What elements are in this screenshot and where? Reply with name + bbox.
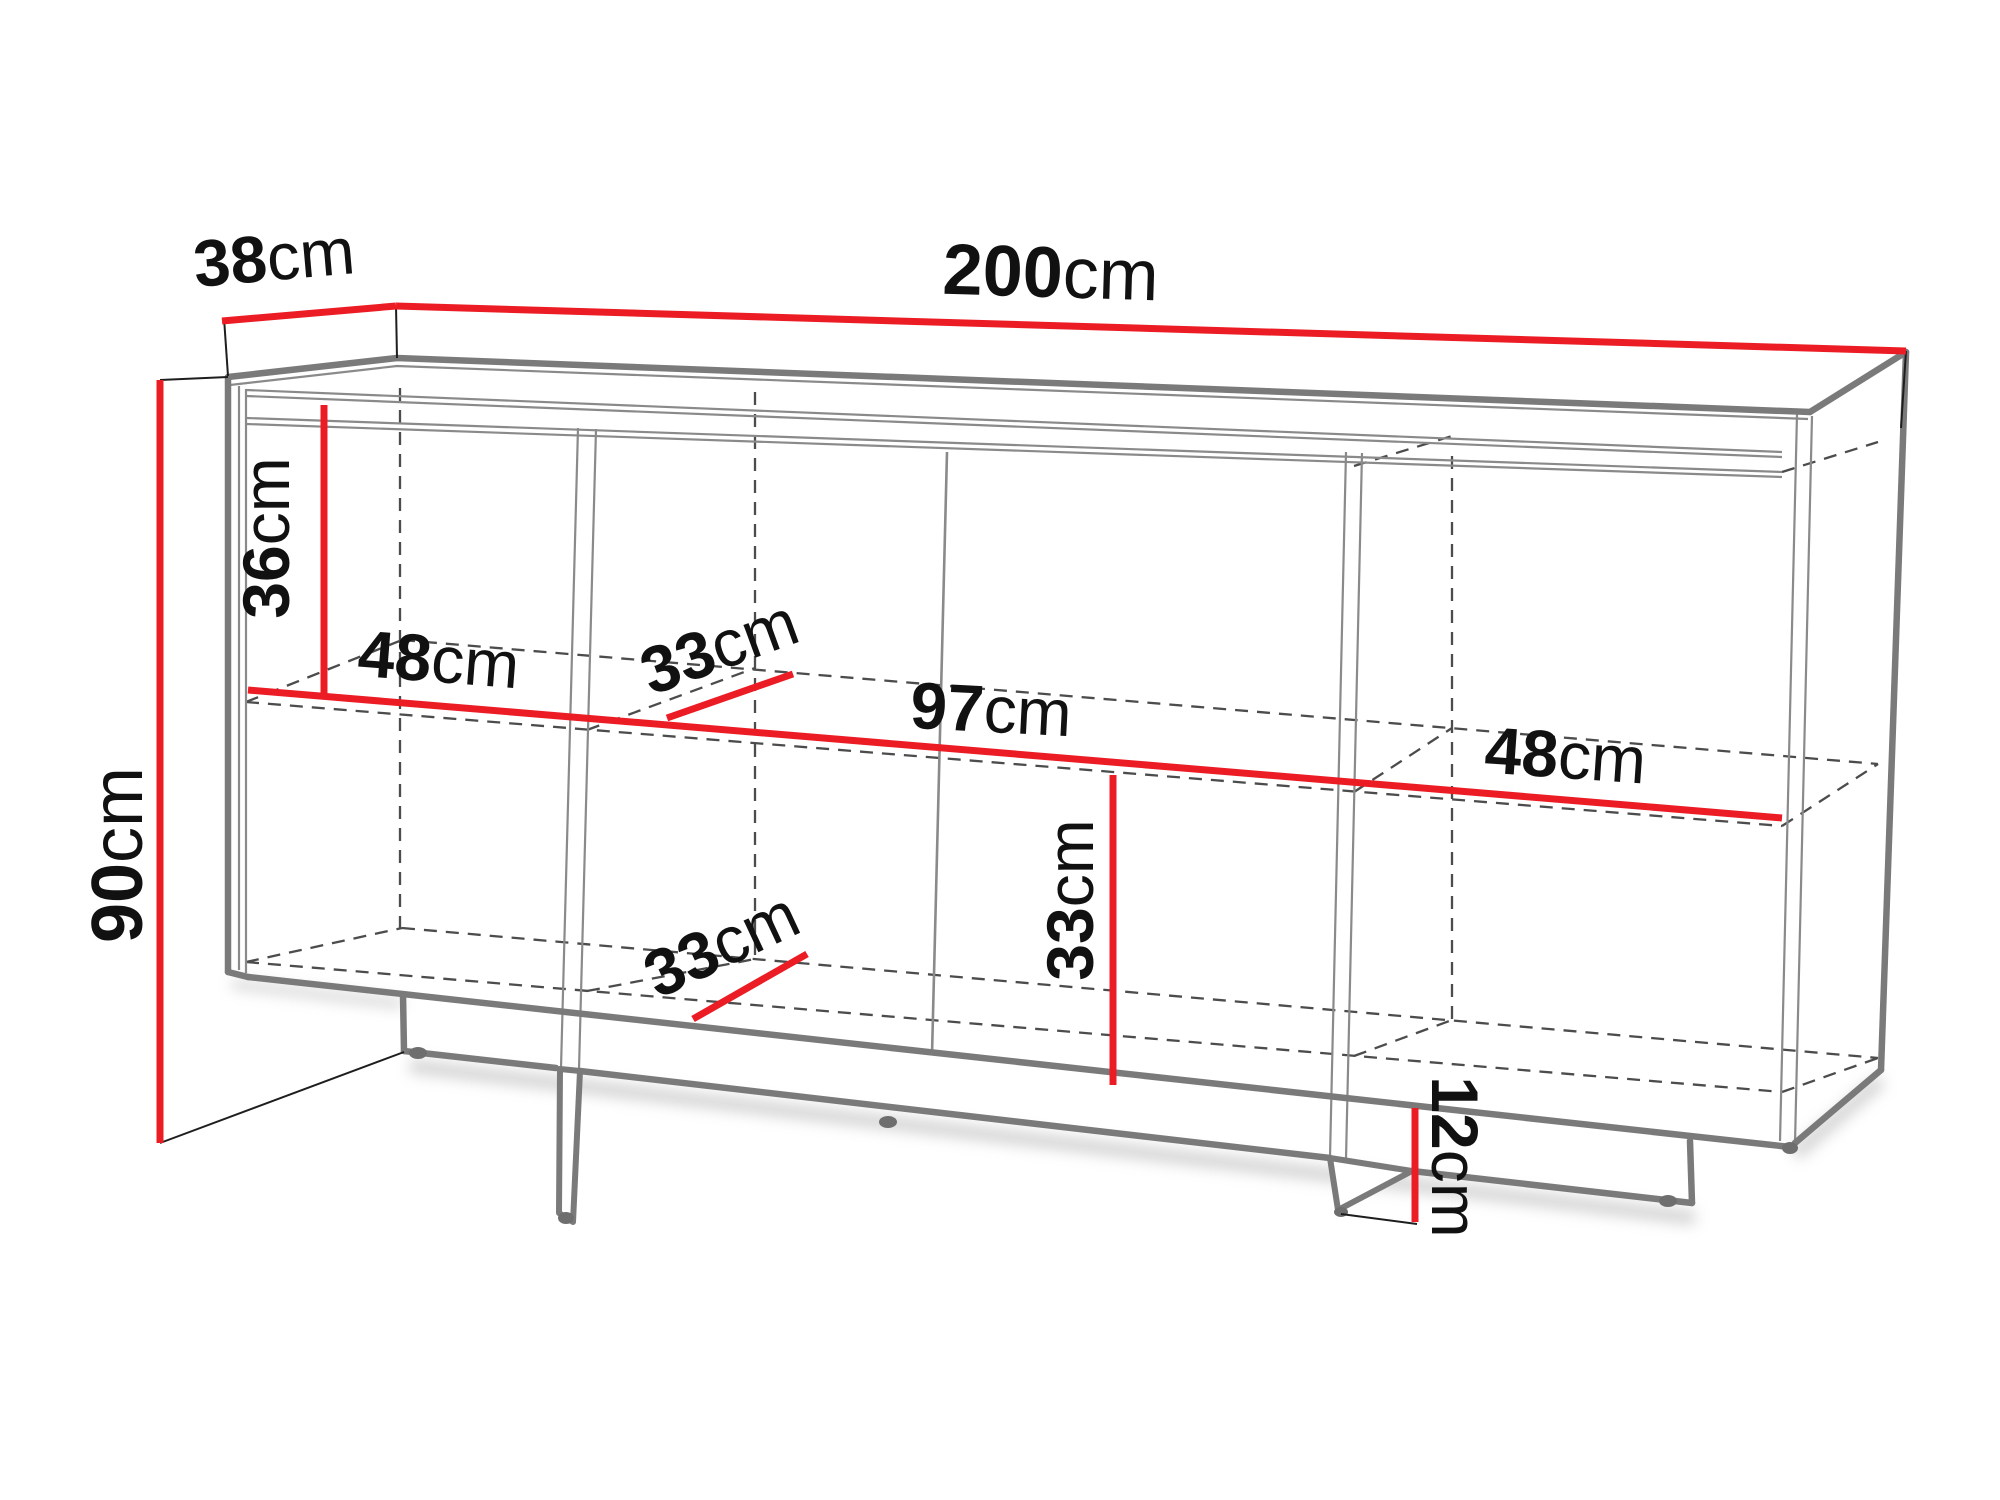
middle-door-gap	[932, 452, 947, 1055]
ext-plinth-bottom	[1341, 1214, 1417, 1224]
shadow-under-plinth	[410, 1066, 1695, 1218]
right-side-inner-edge-b	[1795, 416, 1812, 1143]
svg-text:33cm: 33cm	[1033, 819, 1107, 980]
svg-text:36cm: 36cm	[229, 457, 303, 618]
shelf-back-hidden-edge	[402, 640, 1878, 764]
right-side-inner-edge-a	[1780, 414, 1797, 1141]
shadow-under-right-panel	[1795, 1080, 1881, 1154]
shadow-layer	[232, 984, 1881, 1218]
right-side-bottom-edge	[1795, 1070, 1881, 1143]
foot-left-support	[558, 1212, 574, 1224]
furniture-dimension-diagram: 38cm 200cm 90cm 36cm 48cm 33cm 97cm 48cm…	[0, 0, 2000, 1500]
interior-ceiling-line-2b	[246, 424, 1782, 477]
svg-text:90cm: 90cm	[78, 767, 158, 943]
foot-left	[409, 1047, 427, 1059]
ext-height-top	[160, 377, 228, 380]
dim-label-left-compartment-48cm: 48cm	[355, 616, 522, 702]
floor-depth-edge-left	[246, 928, 402, 962]
svg-text:97cm: 97cm	[909, 668, 1074, 750]
dim-label-depth-38cm: 38cm	[190, 213, 357, 301]
shelf-depth-edge-right	[1782, 764, 1878, 826]
dim-label-lower-inner-33cm: 33cm	[1033, 819, 1107, 980]
dim-label-right-compartment-48cm: 48cm	[1483, 713, 1649, 798]
svg-text:200cm: 200cm	[941, 230, 1160, 317]
svg-text:38cm: 38cm	[190, 213, 357, 301]
ext-height-bottom	[160, 1052, 404, 1143]
ext-depth-left	[224, 318, 228, 376]
cabinet-top-right-depth-edge	[1810, 352, 1906, 412]
diagram-canvas: 38cm 200cm 90cm 36cm 48cm 33cm 97cm 48cm…	[0, 0, 2000, 1500]
dim-label-middle-compartment-97cm: 97cm	[909, 668, 1074, 750]
foot-right	[1659, 1195, 1677, 1207]
svg-text:48cm: 48cm	[1483, 713, 1649, 798]
left-support-foot	[559, 1069, 580, 1222]
right-side-back-edge	[1881, 352, 1906, 1070]
foot-middle	[879, 1116, 897, 1128]
svg-text:12cm: 12cm	[1418, 1076, 1492, 1237]
svg-text:48cm: 48cm	[355, 616, 522, 702]
dim-label-shelf-depth-top-33cm: 33cm	[631, 584, 808, 709]
dim-label-shelf-depth-bottom-33cm: 33cm	[633, 877, 811, 1012]
plinth-left-drop-edge	[403, 995, 404, 1051]
ext-front-corner	[396, 306, 397, 358]
dim-line-depth-38cm	[222, 306, 396, 321]
svg-text:33cm: 33cm	[631, 584, 808, 709]
left-divider-edge-a	[561, 428, 578, 1068]
top-panel-underside-edge	[230, 366, 1808, 419]
dim-label-height-90cm: 90cm	[78, 767, 158, 943]
right-divider-edge-a	[1330, 452, 1346, 1157]
plinth-right-rise-edge	[1690, 1141, 1692, 1203]
dim-label-plinth-12cm: 12cm	[1418, 1076, 1492, 1237]
foot-right-panel	[1782, 1142, 1798, 1154]
dim-label-width-200cm: 200cm	[941, 230, 1160, 317]
left-divider-edge-b	[579, 429, 596, 1069]
svg-text:33cm: 33cm	[633, 877, 811, 1012]
floor-depth-edge-at-right-divider	[1354, 1020, 1452, 1056]
dim-label-upper-inner-36cm: 36cm	[229, 457, 303, 618]
